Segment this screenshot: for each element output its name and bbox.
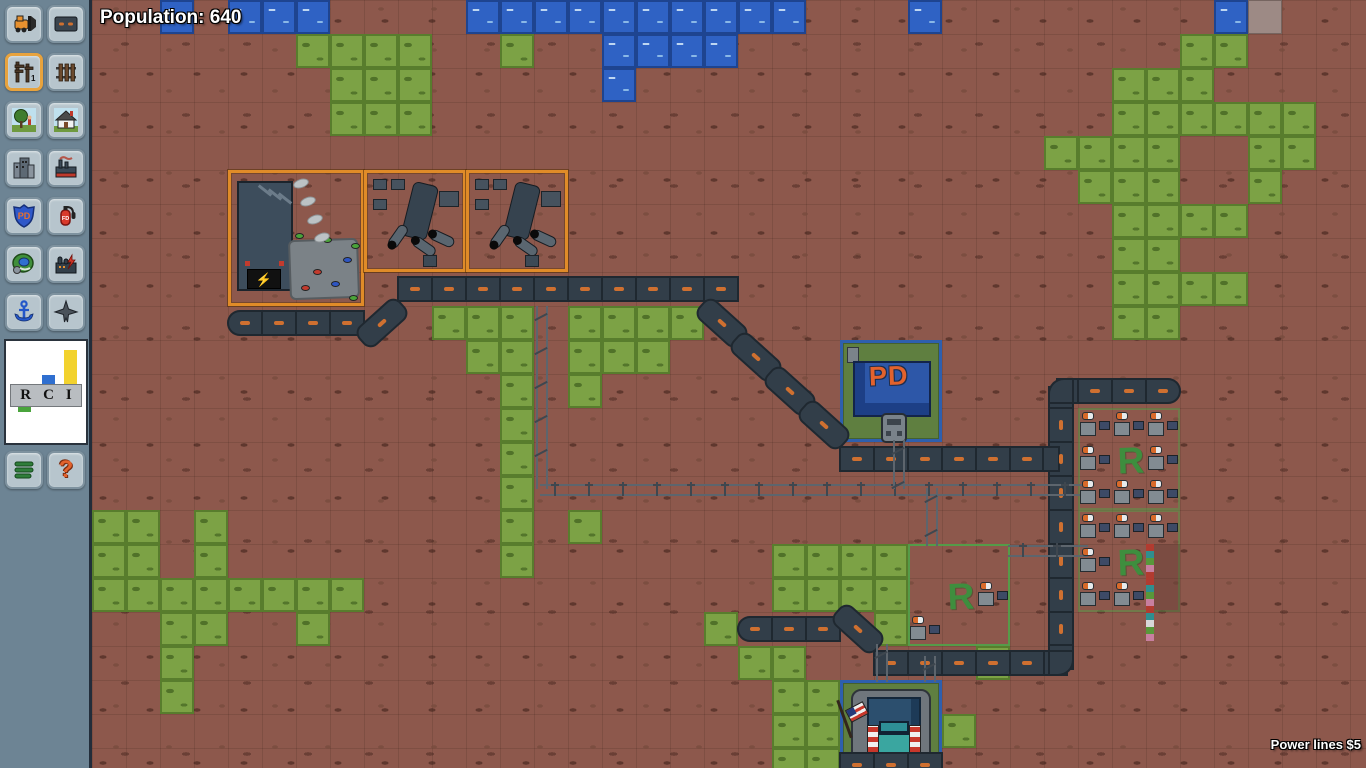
tree-tile bbox=[296, 578, 330, 612]
machine-box bbox=[423, 255, 437, 267]
tree-tile bbox=[568, 510, 602, 544]
police-sign-text: PD bbox=[868, 360, 909, 392]
tree-tile bbox=[262, 578, 296, 612]
city-builder-app: 1PDFD R C I ? bbox=[0, 0, 1366, 768]
tree-tile bbox=[1146, 272, 1180, 306]
debris-dot bbox=[349, 295, 358, 301]
tree-tile bbox=[500, 510, 534, 544]
house-chimney-cap bbox=[1082, 412, 1094, 420]
warning-light bbox=[279, 261, 284, 266]
tool-industrial-button[interactable] bbox=[47, 149, 85, 187]
tool-commercial-button[interactable] bbox=[5, 149, 43, 187]
smokestack-mouth bbox=[386, 239, 399, 252]
tree-tile bbox=[500, 442, 534, 476]
power-pole-crossarm bbox=[922, 663, 935, 671]
car-light bbox=[886, 431, 891, 436]
coal-power-plant-building: ⚡ bbox=[237, 181, 293, 291]
tool-rail-button[interactable] bbox=[47, 53, 85, 91]
water-tile bbox=[602, 0, 636, 34]
rci-label-r: R bbox=[20, 387, 31, 404]
tree-tile bbox=[126, 510, 160, 544]
road-lane-dash bbox=[784, 627, 794, 631]
flag-canton bbox=[846, 707, 856, 717]
tree-tile bbox=[432, 306, 466, 340]
rci-commercial-bar bbox=[42, 375, 55, 384]
rail-icon bbox=[53, 59, 79, 85]
tree-tile bbox=[1180, 272, 1214, 306]
tree-tile bbox=[160, 646, 194, 680]
house-chimney-cap bbox=[1082, 582, 1094, 590]
water-tile bbox=[602, 34, 636, 68]
house-chimney-cap bbox=[1116, 582, 1128, 590]
house-sprite bbox=[1112, 408, 1146, 442]
stadium-icon bbox=[11, 251, 37, 277]
power-pole-crossarm bbox=[619, 484, 627, 486]
tree-tile bbox=[330, 68, 364, 102]
road-lane-dash bbox=[1059, 454, 1063, 464]
tree-tile bbox=[806, 748, 840, 768]
tree-tile bbox=[500, 306, 534, 340]
house-annex bbox=[997, 591, 1008, 600]
tree-tile bbox=[1146, 238, 1180, 272]
water-tile bbox=[670, 34, 704, 68]
help-button[interactable]: ? bbox=[47, 451, 85, 489]
tiny-house bbox=[1146, 565, 1154, 572]
power-pole-crossarm bbox=[551, 484, 559, 486]
house-annex bbox=[1099, 455, 1110, 464]
tiny-house bbox=[1146, 592, 1154, 599]
road-lane-dash bbox=[818, 627, 828, 631]
house-chimney-cap bbox=[1082, 548, 1094, 556]
gravel-yard bbox=[288, 238, 360, 300]
park-icon bbox=[11, 107, 37, 133]
tree-tile bbox=[636, 340, 670, 374]
power-line-vertical[interactable] bbox=[893, 440, 905, 489]
road-lane-dash bbox=[988, 661, 998, 665]
tree-tile bbox=[1112, 170, 1146, 204]
machine-box bbox=[475, 179, 489, 190]
water-tile bbox=[500, 0, 534, 34]
tree-tile bbox=[160, 680, 194, 714]
power-pole-crossarm bbox=[993, 484, 1001, 486]
tiny-house bbox=[1146, 599, 1154, 606]
tool-power-lines-button[interactable]: 1 bbox=[5, 53, 43, 91]
tree-tile bbox=[296, 612, 330, 646]
power-pole-crossarm bbox=[823, 484, 831, 486]
power-pole-crossarm bbox=[534, 415, 547, 423]
tree-tile bbox=[500, 340, 534, 374]
tree-tile bbox=[160, 578, 194, 612]
power-pole-crossarm bbox=[924, 495, 937, 503]
tree-tile bbox=[772, 646, 806, 680]
road-lane-dash bbox=[342, 321, 352, 325]
house-body bbox=[1148, 422, 1164, 436]
commercial-icon bbox=[11, 155, 37, 181]
water-tile bbox=[738, 0, 772, 34]
bulldozer-icon bbox=[11, 11, 37, 37]
tree-tile bbox=[330, 34, 364, 68]
power-pole-crossarm bbox=[653, 484, 661, 486]
tree-tile bbox=[228, 578, 262, 612]
power-pole-crossarm bbox=[891, 481, 904, 489]
house-body bbox=[1114, 524, 1130, 538]
road-lane-dash bbox=[546, 287, 556, 291]
tree-tile bbox=[704, 612, 738, 646]
house-sprite bbox=[1078, 544, 1112, 578]
machine-box bbox=[391, 179, 405, 190]
road-lane-dash bbox=[377, 318, 387, 328]
road-tee-tile bbox=[1042, 446, 1060, 472]
tree-tile bbox=[398, 68, 432, 102]
tiny-house bbox=[1146, 620, 1154, 627]
menu-button[interactable] bbox=[5, 451, 43, 489]
airplane-icon bbox=[53, 299, 79, 325]
machine-box bbox=[541, 191, 561, 207]
tool-road-button[interactable] bbox=[47, 5, 85, 43]
tool-fire-button[interactable]: FD bbox=[47, 197, 85, 235]
tool-power-plant-button[interactable] bbox=[47, 245, 85, 283]
tiny-house bbox=[1146, 634, 1154, 641]
tree-tile bbox=[398, 34, 432, 68]
house-body bbox=[1148, 524, 1164, 538]
factory-sprite bbox=[469, 173, 571, 275]
tree-tile bbox=[568, 340, 602, 374]
tree-tile bbox=[194, 510, 228, 544]
road-lane-dash bbox=[1059, 624, 1063, 634]
road-lane-dash bbox=[954, 457, 964, 461]
tiny-house bbox=[1146, 606, 1154, 613]
road-lane-dash bbox=[886, 763, 896, 767]
house-annex bbox=[1133, 591, 1144, 600]
tree-tile bbox=[1146, 204, 1180, 238]
tool-airport-button[interactable] bbox=[47, 293, 85, 331]
power-pole-crossarm bbox=[534, 449, 547, 457]
tree-tile bbox=[874, 544, 908, 578]
tiny-house bbox=[1146, 558, 1154, 565]
tree-tile bbox=[568, 306, 602, 340]
rci-demand-indicator: R C I bbox=[4, 339, 88, 445]
tool-grid: 1PDFD bbox=[0, 0, 89, 331]
tree-tile bbox=[160, 612, 194, 646]
tree-tile bbox=[398, 102, 432, 136]
tree-tile bbox=[194, 578, 228, 612]
house-chimney-cap bbox=[1116, 480, 1128, 488]
road-lane-dash bbox=[750, 627, 760, 631]
road-lane-dash bbox=[988, 457, 998, 461]
road-lane-dash bbox=[1059, 420, 1063, 430]
tool-bulldozer-button[interactable] bbox=[5, 5, 43, 43]
house-body bbox=[1080, 456, 1096, 470]
tree-tile bbox=[92, 510, 126, 544]
water-tile bbox=[704, 0, 738, 34]
power-pole-crossarm bbox=[721, 484, 729, 486]
tree-tile bbox=[1112, 272, 1146, 306]
rubble-tile bbox=[1248, 0, 1282, 34]
tree-tile bbox=[1180, 204, 1214, 238]
power-line-vertical[interactable] bbox=[536, 306, 548, 489]
house-body bbox=[1080, 422, 1096, 436]
power-line-vertical[interactable] bbox=[876, 644, 888, 682]
tree-tile bbox=[1146, 170, 1180, 204]
tree-tile bbox=[568, 374, 602, 408]
house-sprite bbox=[1146, 442, 1180, 476]
svg-text:PD: PD bbox=[18, 211, 31, 221]
tree-tile bbox=[500, 374, 534, 408]
rci-industrial-bar bbox=[64, 350, 77, 384]
water-tile bbox=[602, 68, 636, 102]
power-line-vertical[interactable] bbox=[924, 656, 936, 682]
road-lane-dash bbox=[614, 287, 624, 291]
water-tile bbox=[636, 0, 670, 34]
road-lane-dash bbox=[853, 624, 863, 634]
house-body bbox=[1114, 592, 1130, 606]
machine-box bbox=[475, 199, 489, 210]
water-tile bbox=[262, 0, 296, 34]
road-lane-dash bbox=[716, 287, 726, 291]
tree-tile bbox=[1214, 204, 1248, 238]
tiny-house bbox=[1146, 585, 1154, 592]
debris-dot bbox=[295, 233, 304, 239]
tree-tile bbox=[1248, 136, 1282, 170]
residential-zone-letter: R bbox=[1113, 545, 1148, 580]
tree-tile bbox=[194, 544, 228, 578]
power-pole-crossarm bbox=[1061, 484, 1069, 486]
tree-tile bbox=[330, 102, 364, 136]
tiny-house bbox=[1146, 613, 1154, 620]
tree-tile bbox=[296, 34, 330, 68]
police-icon: PD bbox=[11, 203, 37, 229]
house-chimney-cap bbox=[912, 616, 924, 624]
house-annex bbox=[1167, 455, 1178, 464]
debris-dot bbox=[343, 257, 352, 263]
tree-tile bbox=[772, 544, 806, 578]
tree-tile bbox=[772, 578, 806, 612]
water-tile bbox=[1214, 0, 1248, 34]
house-sprite bbox=[1078, 476, 1112, 510]
water-tile bbox=[636, 34, 670, 68]
power-pole-crossarm bbox=[924, 529, 937, 537]
house-sprite bbox=[1146, 408, 1180, 442]
machine-box bbox=[525, 255, 539, 267]
road-lane-dash bbox=[852, 763, 862, 767]
industrial-zone bbox=[364, 170, 466, 272]
road-lane-dash bbox=[274, 321, 284, 325]
tree-tile bbox=[840, 544, 874, 578]
power-pole-crossarm bbox=[1019, 545, 1027, 547]
house-body bbox=[1114, 422, 1130, 436]
road-lane-dash bbox=[1158, 389, 1168, 393]
power-pole-crossarm bbox=[959, 484, 967, 486]
house-chimney-cap bbox=[1116, 412, 1128, 420]
power-pole-crossarm bbox=[789, 484, 797, 486]
power-line-horizontal[interactable] bbox=[540, 484, 1084, 496]
road-lane-dash bbox=[648, 287, 658, 291]
tree-tile bbox=[942, 714, 976, 748]
house-sprite bbox=[1112, 510, 1146, 544]
tree-tile bbox=[364, 68, 398, 102]
toolbar-sidebar: 1PDFD R C I ? bbox=[0, 0, 92, 768]
road-lane-dash bbox=[920, 763, 930, 767]
power-line-horizontal[interactable] bbox=[1008, 545, 1088, 557]
svg-text:1: 1 bbox=[31, 74, 36, 83]
tree-tile bbox=[1180, 34, 1214, 68]
tree-tile bbox=[1282, 102, 1316, 136]
road-corner-tile bbox=[1048, 650, 1074, 676]
garage-windshield bbox=[879, 721, 909, 733]
tree-tile bbox=[1112, 238, 1146, 272]
anchor-icon bbox=[11, 299, 37, 325]
house-annex bbox=[929, 625, 940, 634]
house-chimney-cap bbox=[1150, 446, 1162, 454]
tree-tile bbox=[500, 34, 534, 68]
road-lane-dash bbox=[1022, 661, 1032, 665]
debris-dot bbox=[301, 285, 310, 291]
house-annex bbox=[1133, 421, 1144, 430]
house-chimney-cap bbox=[1150, 412, 1162, 420]
tree-tile bbox=[1282, 136, 1316, 170]
tree-tile bbox=[1112, 68, 1146, 102]
tree-tile bbox=[1112, 102, 1146, 136]
status-cost-label: Power lines $5 bbox=[1271, 737, 1361, 752]
tree-tile bbox=[1078, 136, 1112, 170]
car-light bbox=[897, 431, 902, 436]
residential-zone-letter: R bbox=[1113, 443, 1148, 478]
power-plant-zone: ⚡ bbox=[228, 170, 364, 306]
power-lines-icon: 1 bbox=[11, 59, 37, 85]
road-lane-dash bbox=[308, 321, 318, 325]
tree-tile bbox=[500, 476, 534, 510]
house-chimney-cap bbox=[1082, 480, 1094, 488]
tree-tile bbox=[1112, 136, 1146, 170]
map-viewport[interactable]: Population: 640 ⚡PDRRR bbox=[92, 0, 1366, 768]
factory-sprite bbox=[367, 173, 469, 275]
road-icon bbox=[53, 11, 79, 37]
road-lane-dash bbox=[954, 661, 964, 665]
tree-tile bbox=[126, 578, 160, 612]
house-chimney-cap bbox=[1150, 480, 1162, 488]
tool-seaport-button[interactable] bbox=[5, 293, 43, 331]
tree-tile bbox=[500, 544, 534, 578]
tree-tile bbox=[806, 680, 840, 714]
tree-tile bbox=[1146, 306, 1180, 340]
power-badge: ⚡ bbox=[247, 269, 281, 289]
power-pole-crossarm bbox=[687, 484, 695, 486]
warning-light bbox=[245, 261, 250, 266]
tree-tile bbox=[1146, 102, 1180, 136]
house-annex bbox=[1167, 421, 1178, 430]
dense-housing-sprite bbox=[1146, 544, 1180, 578]
house-body bbox=[1080, 524, 1096, 538]
house-annex bbox=[1133, 489, 1144, 498]
tree-tile bbox=[806, 578, 840, 612]
road-lane-dash bbox=[920, 457, 930, 461]
tree-tile bbox=[1248, 102, 1282, 136]
power-pole-crossarm bbox=[891, 447, 904, 455]
road-lane-dash bbox=[478, 287, 488, 291]
tool-park-button[interactable] bbox=[5, 101, 43, 139]
police-zone: PD bbox=[840, 340, 942, 442]
tool-police-button[interactable]: PD bbox=[5, 197, 43, 235]
tiny-house bbox=[1146, 544, 1154, 551]
tree-tile bbox=[92, 544, 126, 578]
residential-icon bbox=[53, 107, 79, 133]
house-body bbox=[910, 626, 926, 640]
house-annex bbox=[1099, 523, 1110, 532]
house-body bbox=[1148, 456, 1164, 470]
water-tile bbox=[772, 0, 806, 34]
tree-tile bbox=[1112, 306, 1146, 340]
industrial-icon bbox=[53, 155, 79, 181]
debris-dot bbox=[331, 281, 340, 287]
power-pole-crossarm bbox=[534, 381, 547, 389]
police-car-sprite bbox=[881, 413, 907, 443]
fire-icon: FD bbox=[53, 203, 79, 229]
tree-tile bbox=[1146, 68, 1180, 102]
power-pole-crossarm bbox=[585, 484, 593, 486]
tree-tile bbox=[364, 34, 398, 68]
machine-box bbox=[373, 199, 387, 210]
house-chimney-cap bbox=[1082, 514, 1094, 522]
tree-tile bbox=[1214, 102, 1248, 136]
tree-tile bbox=[466, 306, 500, 340]
power-pole-crossarm bbox=[1027, 484, 1035, 486]
road-lane-dash bbox=[1124, 389, 1134, 393]
tree-tile bbox=[772, 748, 806, 768]
tree-tile bbox=[500, 408, 534, 442]
car-window bbox=[887, 419, 901, 425]
power-pole-crossarm bbox=[857, 484, 865, 486]
tool-residential-button[interactable] bbox=[47, 101, 85, 139]
tree-tile bbox=[1146, 136, 1180, 170]
house-annex bbox=[1167, 523, 1178, 532]
tree-tile bbox=[194, 612, 228, 646]
tiny-house bbox=[1146, 578, 1154, 585]
tree-tile bbox=[636, 306, 670, 340]
tree-tile bbox=[1214, 272, 1248, 306]
tree-tile bbox=[772, 680, 806, 714]
smoke-puff bbox=[292, 177, 310, 191]
tool-stadium-button[interactable] bbox=[5, 245, 43, 283]
tree-tile bbox=[92, 578, 126, 612]
tree-tile bbox=[1248, 170, 1282, 204]
water-tile bbox=[568, 0, 602, 34]
water-tile bbox=[296, 0, 330, 34]
house-chimney-cap bbox=[980, 582, 992, 590]
water-tile bbox=[704, 34, 738, 68]
road-lane-dash bbox=[1022, 457, 1032, 461]
power-line-vertical[interactable] bbox=[926, 488, 938, 546]
machine-box bbox=[493, 179, 507, 190]
water-tile bbox=[534, 0, 568, 34]
road-lane-dash bbox=[444, 287, 454, 291]
power-plant-icon bbox=[53, 251, 79, 277]
house-annex bbox=[1099, 557, 1110, 566]
tree-tile bbox=[738, 646, 772, 680]
road-lane-dash bbox=[751, 352, 761, 362]
house-chimney-cap bbox=[1116, 514, 1128, 522]
road-lane-dash bbox=[1059, 522, 1063, 532]
house-sprite bbox=[1112, 476, 1146, 510]
tree-tile bbox=[602, 306, 636, 340]
road-lane-dash bbox=[410, 287, 420, 291]
tree-tile bbox=[330, 578, 364, 612]
rci-label-c: C bbox=[43, 387, 54, 404]
house-chimney-cap bbox=[1082, 446, 1094, 454]
rci-label-i: I bbox=[66, 387, 72, 404]
power-pole-crossarm bbox=[534, 347, 547, 355]
house-body bbox=[1114, 490, 1130, 504]
tree-tile bbox=[602, 340, 636, 374]
